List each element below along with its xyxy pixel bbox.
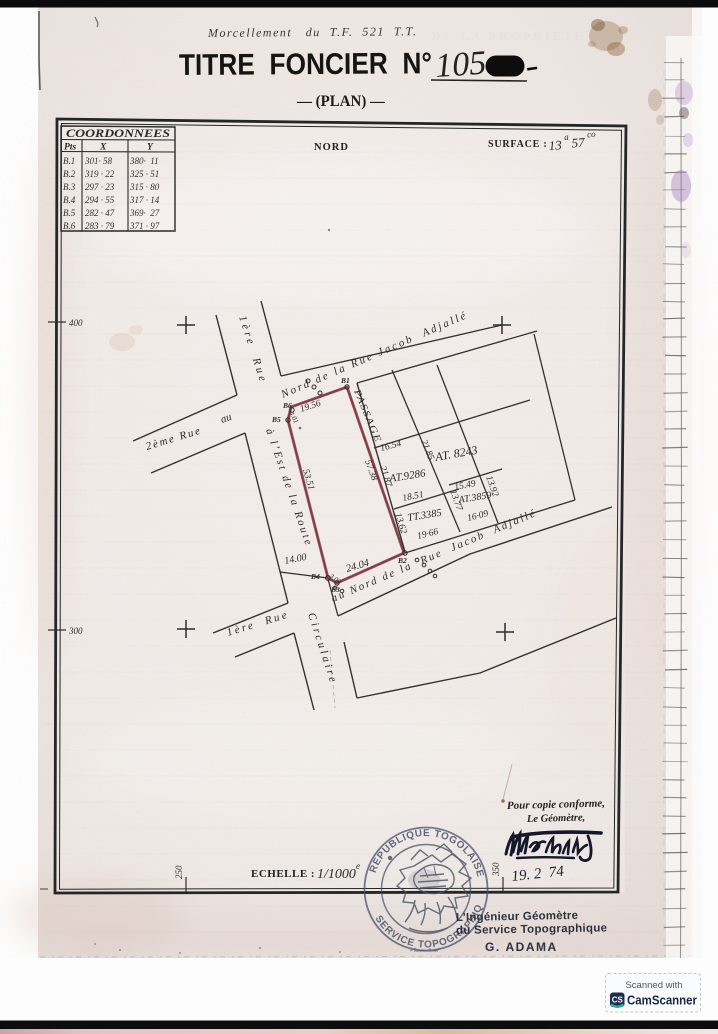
svg-text:NORD: NORD [314,142,349,153]
svg-text:400: 400 [69,318,83,328]
svg-text:co: co [587,129,597,140]
svg-text:369· 27: 369· 27 [129,208,160,218]
svg-text:380· 11: 380· 11 [129,156,159,166]
svg-text:319 · 22: 319 · 22 [84,169,115,179]
svg-text:CS: CS [612,996,624,1005]
svg-text:325 · 51: 325 · 51 [129,169,159,179]
svg-text:— (PLAN) —: — (PLAN) — [296,93,385,110]
svg-text:B4: B4 [310,572,320,581]
svg-text:105: 105 [434,45,487,85]
svg-text:297 · 23: 297 · 23 [85,182,115,192]
svg-text:1/1000: 1/1000 [317,867,356,882]
svg-text:SURFACE :: SURFACE : [488,139,548,150]
svg-text:315 · 80: 315 · 80 [129,182,160,192]
svg-text:300: 300 [68,626,83,636]
svg-text:283 · 79: 283 · 79 [85,221,115,231]
svg-text:13: 13 [548,137,563,153]
svg-text:Pour copie conforme,: Pour copie conforme, [507,797,605,812]
svg-text:Scanned with: Scanned with [625,980,682,991]
svg-text:250: 250 [174,865,184,879]
svg-text:B.2: B.2 [63,169,76,179]
svg-text:371 · 97: 371 · 97 [129,221,160,231]
svg-text:Le Géomètre,: Le Géomètre, [526,812,586,825]
svg-text:350: 350 [491,862,501,877]
svg-text:282 · 47: 282 · 47 [85,208,115,218]
svg-text:L’Ingénieur Géomètre: L’Ingénieur Géomètre [456,910,578,924]
svg-text:G. ADAMA: G. ADAMA [485,940,558,954]
svg-text:e: e [356,861,360,871]
svg-text:294 · 55: 294 · 55 [85,195,115,205]
svg-text:B5: B5 [271,415,281,424]
svg-text:B1: B1 [340,376,350,385]
svg-text:B.4: B.4 [63,195,76,205]
svg-text:301· 58: 301· 58 [84,156,113,166]
svg-text:X: X [99,143,107,153]
svg-text:B.5: B.5 [63,208,76,218]
svg-text:B.1: B.1 [63,156,75,166]
svg-text:B6: B6 [282,401,292,410]
svg-text:B.3: B.3 [63,182,76,192]
svg-text:COORDONNEES: COORDONNEES [66,128,170,140]
svg-text:B.6: B.6 [63,221,76,231]
svg-text:DE LA PROPRIETE: DE LA PROPRIETE [432,29,586,43]
svg-text:ECHELLE :: ECHELLE : [251,868,315,880]
svg-text:Pts: Pts [64,143,76,153]
svg-text:317 · 14: 317 · 14 [129,195,160,205]
svg-text:CamScanner: CamScanner [627,993,697,1008]
svg-text:TITRE FONCIER N°: TITRE FONCIER N° [179,47,432,82]
svg-text:57: 57 [571,135,586,151]
